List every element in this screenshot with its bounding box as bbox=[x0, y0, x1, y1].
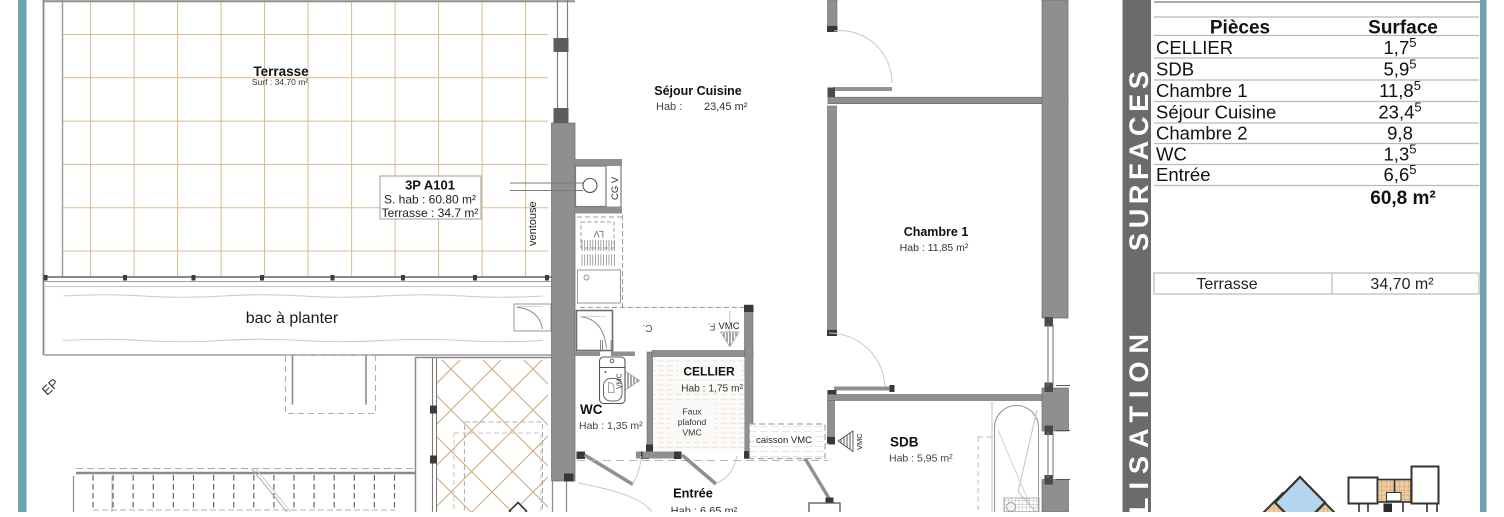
svg-text:SDB: SDB bbox=[1156, 59, 1194, 80]
svg-text:3P A101: 3P A101 bbox=[405, 178, 455, 193]
svg-text:WC: WC bbox=[1156, 144, 1187, 165]
svg-text:Surface: Surface bbox=[1368, 18, 1438, 39]
svg-text:34,70 m²: 34,70 m² bbox=[1370, 276, 1434, 293]
svg-text:Hab : 6.65 m²: Hab : 6.65 m² bbox=[671, 506, 738, 513]
svg-text:VMC: VMC bbox=[718, 321, 739, 332]
svg-text:Hab : 11,85 m²: Hab : 11,85 m² bbox=[900, 242, 969, 254]
svg-text:VMC: VMC bbox=[855, 433, 864, 450]
svg-text:bac à planter: bac à planter bbox=[246, 310, 339, 327]
svg-text:Séjour Cuisine: Séjour Cuisine bbox=[1156, 102, 1276, 123]
svg-text:SURFACES: SURFACES bbox=[1124, 66, 1154, 251]
svg-text:Chambre 2: Chambre 2 bbox=[1156, 123, 1248, 144]
svg-text:Hab : 1,35 m²: Hab : 1,35 m² bbox=[579, 420, 643, 432]
svg-text:ventouse: ventouse bbox=[527, 201, 539, 246]
svg-text:S. hab : 60.80 m²: S. hab : 60.80 m² bbox=[384, 193, 476, 207]
svg-text:Hab : 1,75 m²: Hab : 1,75 m² bbox=[681, 384, 743, 395]
svg-text:CELLIER: CELLIER bbox=[1156, 37, 1233, 58]
svg-text:VMC: VMC bbox=[682, 428, 701, 438]
svg-text:LV: LV bbox=[594, 229, 604, 239]
svg-text:Terrasse : 34.7 m²: Terrasse : 34.7 m² bbox=[382, 206, 479, 220]
svg-text:caisson VMC: caisson VMC bbox=[756, 435, 812, 446]
svg-text:Hab :: Hab : bbox=[656, 101, 682, 113]
svg-text:Faux: Faux bbox=[682, 407, 702, 417]
svg-text:SDB: SDB bbox=[890, 435, 919, 450]
svg-text:WC: WC bbox=[580, 402, 603, 417]
svg-text:F.: F. bbox=[708, 321, 716, 332]
svg-text:CELLIER: CELLIER bbox=[683, 365, 735, 379]
svg-text:Surf : 34.70 m²: Surf : 34.70 m² bbox=[252, 77, 308, 87]
svg-text:plafond: plafond bbox=[678, 417, 707, 427]
svg-text:CG V: CG V bbox=[610, 176, 621, 200]
svg-text:60,8 m²: 60,8 m² bbox=[1370, 188, 1435, 209]
svg-text:VMC: VMC bbox=[617, 373, 624, 389]
svg-text:23,45 m²: 23,45 m² bbox=[704, 101, 748, 113]
svg-text:Chambre 1: Chambre 1 bbox=[904, 225, 969, 239]
svg-text:Entrée: Entrée bbox=[1156, 164, 1211, 185]
svg-text:Entrée: Entrée bbox=[673, 486, 713, 501]
svg-text:Chambre 1: Chambre 1 bbox=[1156, 80, 1248, 101]
svg-text:9,8: 9,8 bbox=[1387, 123, 1413, 144]
svg-text:LISATION: LISATION bbox=[1124, 326, 1154, 512]
svg-text:Séjour Cuisine: Séjour Cuisine bbox=[654, 84, 742, 98]
svg-text:Pièces: Pièces bbox=[1210, 18, 1270, 39]
svg-text:C.: C. bbox=[643, 322, 653, 333]
svg-text:Hab : 5,95 m²: Hab : 5,95 m² bbox=[889, 453, 953, 465]
svg-text:Terrasse: Terrasse bbox=[1196, 276, 1257, 293]
